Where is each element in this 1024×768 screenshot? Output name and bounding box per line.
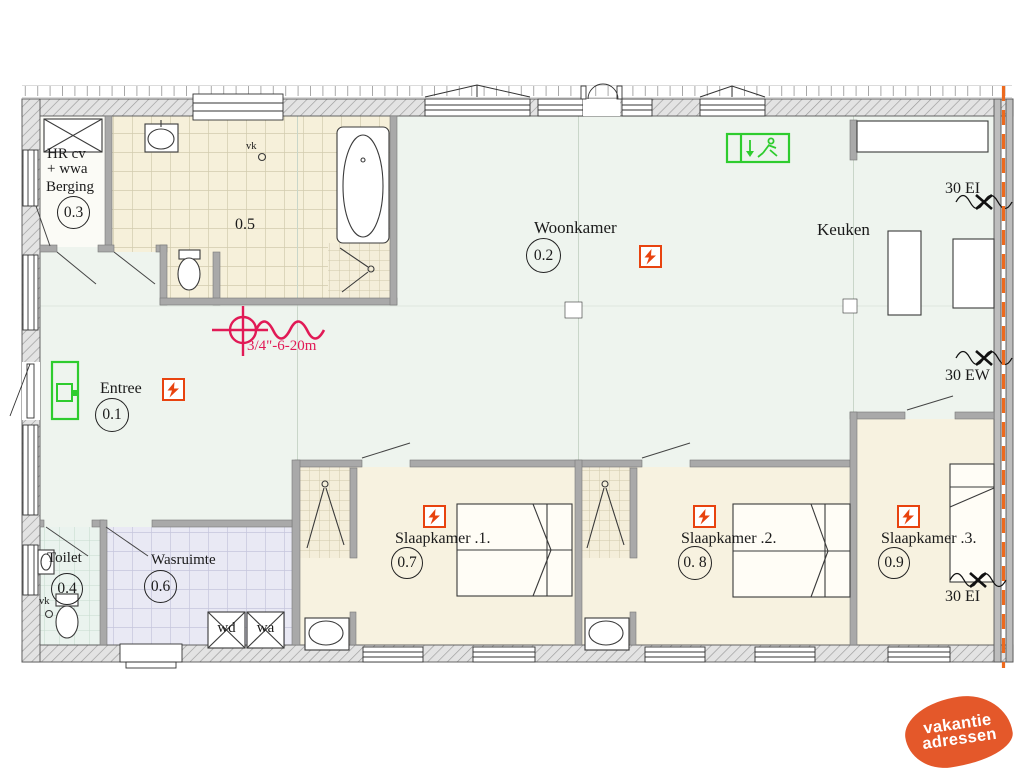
gas-pipe-label: 3/4"-6-20m — [247, 339, 316, 355]
kitchen-cabinet — [953, 239, 994, 308]
window — [23, 255, 38, 330]
smoke-detector-icon — [694, 506, 715, 527]
fire-label-top: 30 EI — [945, 181, 980, 198]
room-number-slaapkamer3: 0.9 — [878, 547, 910, 579]
room-number-berging: 0.3 — [57, 196, 90, 229]
bathtub-icon — [337, 127, 389, 243]
washer-label: wa — [247, 620, 284, 637]
window — [538, 99, 583, 116]
wall-right-outer-leaf — [1006, 99, 1013, 662]
wall-right-inner-leaf — [994, 99, 1001, 662]
window — [193, 94, 283, 120]
window — [23, 545, 38, 595]
smoke-detector-icon — [424, 506, 445, 527]
window — [888, 647, 950, 662]
window — [645, 647, 705, 662]
bathroom-shower-floor — [328, 243, 390, 305]
kitchen-counter — [857, 121, 988, 152]
window — [363, 647, 423, 662]
vent-label-badkamer: vk — [246, 141, 257, 152]
floorplan-drawing — [0, 0, 1024, 768]
room-label-slaapkamer3: Slaapkamer .3. — [881, 531, 977, 548]
window — [755, 647, 815, 662]
smoke-detector-icon — [898, 506, 919, 527]
room-label-berging: Berging — [46, 180, 94, 196]
kitchen-island — [888, 231, 921, 315]
toilet-icon — [178, 250, 200, 290]
column — [565, 302, 582, 318]
room-number-badkamer: 0.5 — [235, 217, 255, 234]
room-number-wasruimte: 0.6 — [144, 570, 177, 603]
room-number-entree: 0.1 — [95, 398, 129, 432]
room-number-toilet: 0.4 — [51, 573, 83, 605]
vent-label-toilet: vk — [39, 596, 50, 607]
bedroom2-shower-floor — [582, 467, 632, 558]
room-label-keuken: Keuken — [817, 221, 870, 239]
window — [700, 99, 765, 116]
sink-icon — [145, 120, 178, 152]
entrance-door — [10, 362, 40, 420]
fire-label-mid: 30 EW — [945, 368, 990, 385]
window — [23, 150, 38, 206]
floorplan-canvas: HR cv + wwa Berging 0.3 vk 0.5 Woonkamer… — [0, 0, 1024, 768]
scale-tick-strip — [22, 85, 1012, 98]
smoke-detector-icon — [640, 246, 661, 267]
room-number-woonkamer: 0.2 — [526, 238, 561, 273]
boiler-label-line2: + wwa — [47, 162, 88, 178]
room-label-wasruimte: Wasruimte — [151, 553, 216, 569]
column — [843, 299, 857, 313]
room-label-entree: Entree — [100, 381, 142, 398]
back-door-laundry — [120, 644, 182, 668]
sink-icon — [585, 618, 629, 650]
double-bed-icon — [733, 504, 850, 597]
fire-label-bottom: 30 EI — [945, 589, 980, 606]
room-label-woonkamer: Woonkamer — [534, 219, 617, 237]
room-label-toilet: Toilet — [47, 551, 82, 567]
single-bed-icon — [950, 464, 994, 582]
double-bed-icon — [457, 504, 572, 596]
room-number-slaapkamer2: 0. 8 — [678, 546, 712, 580]
room-label-slaapkamer1: Slaapkamer .1. — [395, 531, 491, 548]
window — [622, 99, 652, 116]
window — [425, 99, 530, 116]
sink-icon — [305, 618, 349, 650]
window — [23, 425, 38, 515]
dryer-label: wd — [208, 620, 245, 637]
smoke-detector-icon — [163, 379, 184, 400]
window — [473, 647, 535, 662]
room-number-slaapkamer1: 0.7 — [391, 547, 423, 579]
